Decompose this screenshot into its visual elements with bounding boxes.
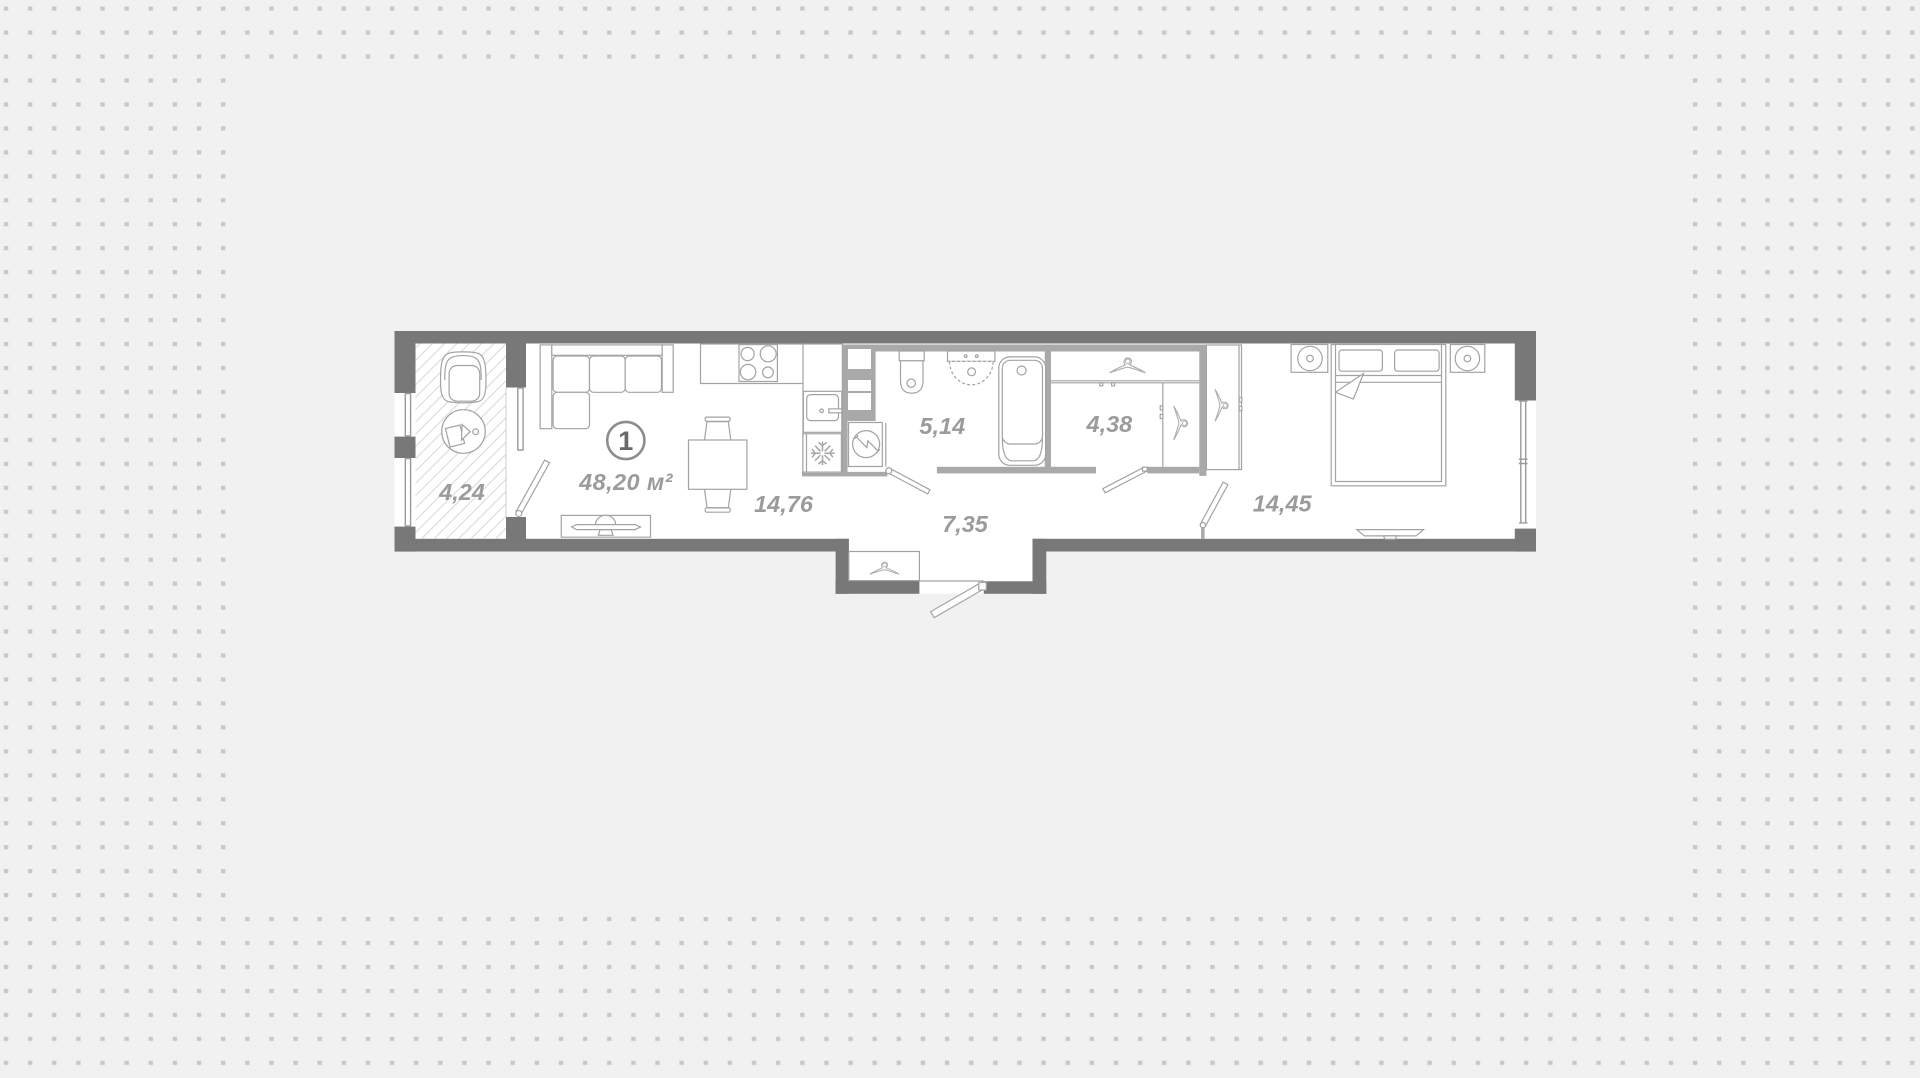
svg-text:4,24: 4,24 — [438, 479, 485, 505]
svg-text:5,14: 5,14 — [919, 413, 965, 439]
svg-text:4,38: 4,38 — [1086, 411, 1134, 437]
svg-text:14,76: 14,76 — [754, 491, 814, 517]
svg-text:48,20 м²: 48,20 м² — [578, 469, 674, 495]
svg-text:7,35: 7,35 — [942, 511, 989, 537]
svg-text:1: 1 — [618, 426, 633, 456]
svg-text:14,45: 14,45 — [1253, 491, 1313, 517]
